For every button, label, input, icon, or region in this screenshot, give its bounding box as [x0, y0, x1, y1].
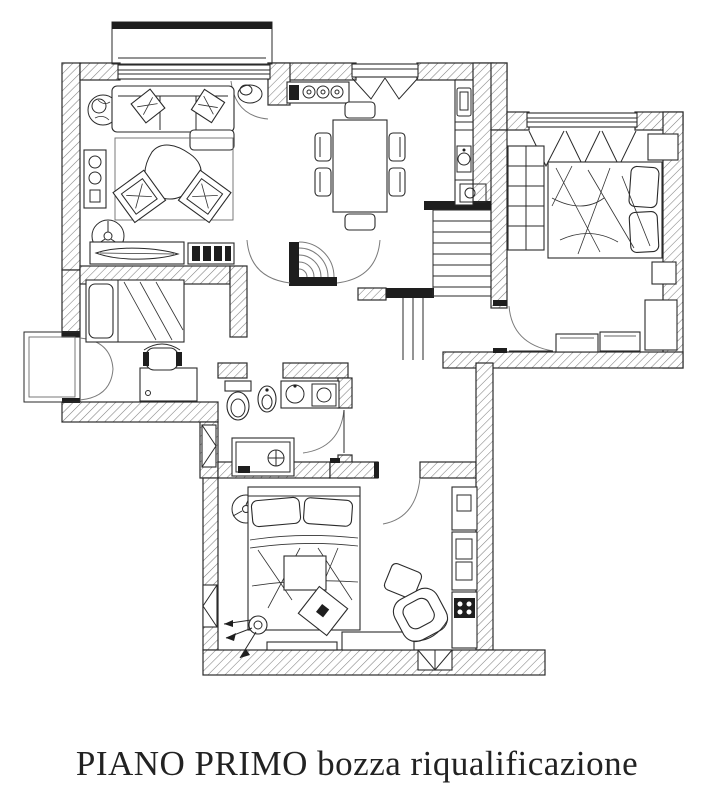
tv-media-unit	[188, 243, 234, 264]
washbasin-cabinet	[281, 381, 339, 408]
accent-armchair-right	[178, 170, 230, 222]
chair	[389, 168, 405, 196]
bottomroom-bottom-window	[418, 650, 452, 670]
wardrobe-column	[508, 146, 544, 250]
desk	[140, 344, 197, 401]
chair	[345, 102, 375, 118]
decorative-object	[238, 85, 262, 103]
bedroom-right	[508, 134, 678, 352]
shower-enclosure	[232, 438, 294, 476]
low-dresser	[556, 334, 598, 352]
bathroom-window	[202, 425, 216, 467]
dining-room	[287, 82, 405, 230]
bedroom-small-left	[86, 280, 197, 401]
bench	[267, 642, 337, 650]
dining-window	[352, 64, 418, 99]
accent-armchair-left	[113, 170, 165, 222]
low-console	[90, 242, 184, 264]
appliance-counter	[287, 82, 349, 103]
dining-table	[315, 102, 405, 230]
sofa-with-chaise	[112, 86, 234, 150]
double-bed	[548, 162, 662, 258]
chair	[345, 214, 375, 230]
nightstand	[648, 134, 678, 160]
pillow	[89, 284, 113, 338]
chair	[315, 133, 331, 161]
bottomroom-left-window	[203, 585, 217, 627]
living-room	[84, 86, 234, 264]
kitchenette-column	[452, 487, 477, 648]
chair	[389, 133, 405, 161]
nightstand	[652, 262, 676, 284]
caption: PIANO PRIMO bozza riqualificazione	[76, 744, 638, 783]
hifi-cabinet	[84, 150, 106, 208]
arched-niche	[299, 242, 334, 277]
low-cabinet	[342, 632, 414, 650]
floor-plan-drawing: PIANO PRIMO bozza riqualificazione	[0, 0, 711, 800]
bidet	[258, 386, 276, 412]
floor-plan-page: PIANO PRIMO bozza riqualificazione	[0, 0, 711, 800]
bed-runner	[284, 556, 326, 590]
desk-chair	[143, 344, 182, 370]
cooktop	[454, 598, 475, 618]
low-dresser	[600, 332, 640, 351]
stairs-lower-flight	[403, 298, 423, 360]
top-balcony	[112, 22, 272, 64]
tall-dresser	[645, 300, 677, 350]
staircase	[403, 210, 491, 360]
bedroom-bottom	[224, 487, 477, 658]
single-bed	[86, 280, 184, 342]
chair	[315, 168, 331, 196]
toilet	[225, 381, 251, 420]
